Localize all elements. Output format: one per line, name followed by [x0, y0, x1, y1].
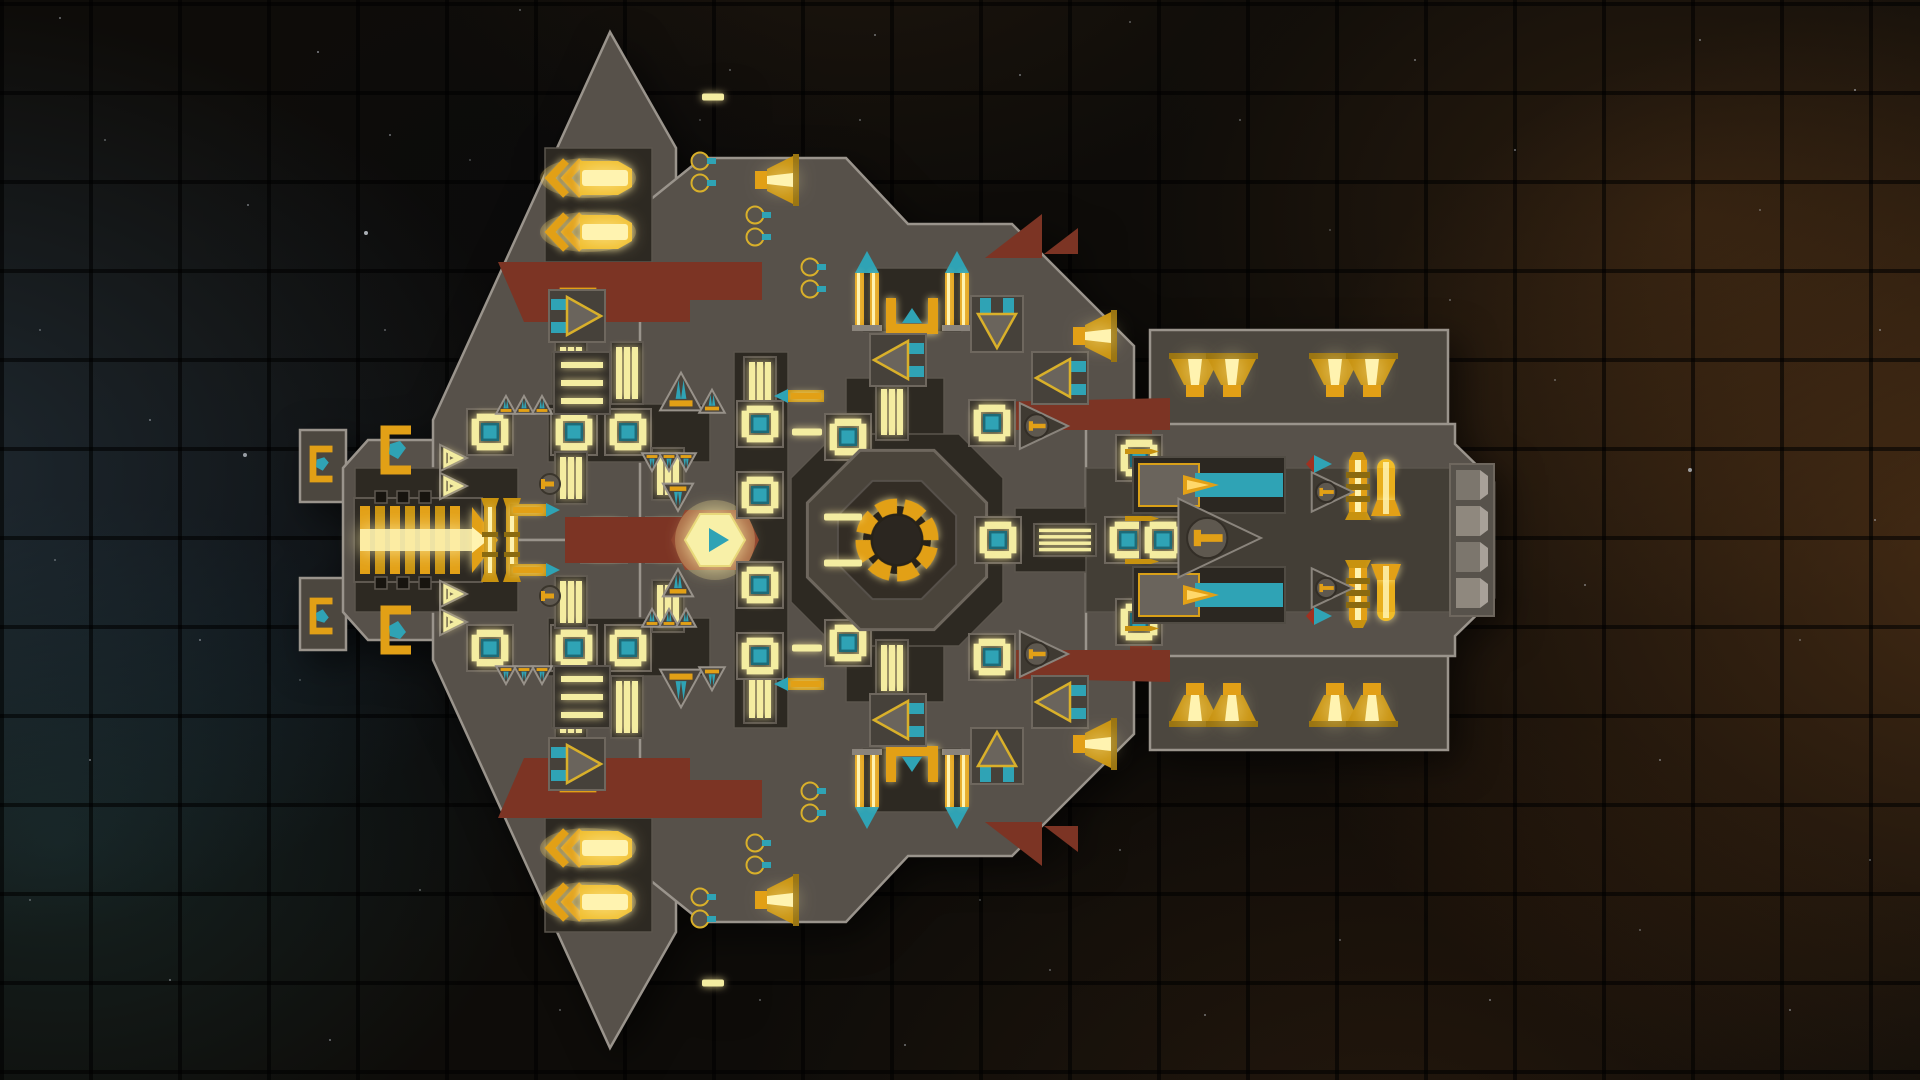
star — [389, 134, 391, 136]
star — [1554, 379, 1556, 381]
star — [59, 17, 61, 19]
star — [979, 899, 981, 901]
module-glowbar[interactable] — [702, 980, 724, 987]
module-corV[interactable] — [611, 342, 643, 404]
star — [1049, 969, 1051, 971]
star — [1854, 89, 1856, 91]
star — [1239, 119, 1241, 121]
star — [1449, 299, 1451, 301]
module-turret[interactable] — [971, 728, 1023, 784]
star — [1874, 519, 1876, 521]
module-engine[interactable] — [354, 498, 498, 582]
star — [1789, 1009, 1791, 1011]
star — [149, 419, 151, 421]
module-room[interactable] — [737, 562, 783, 608]
star — [54, 559, 56, 561]
star — [199, 639, 201, 641]
star — [759, 999, 761, 1001]
star — [384, 329, 386, 331]
star — [699, 119, 701, 121]
module-corV[interactable] — [555, 452, 587, 504]
module-turret[interactable] — [1032, 676, 1088, 728]
module-dome0[interactable] — [540, 586, 560, 606]
module-turret[interactable] — [971, 296, 1023, 352]
module-glowbar[interactable] — [792, 429, 822, 436]
star — [329, 1039, 331, 1041]
module-corV[interactable] — [555, 576, 587, 628]
star — [1879, 329, 1881, 331]
module-room[interactable] — [975, 517, 1021, 563]
module-corV[interactable] — [876, 384, 908, 440]
player-ship[interactable] — [300, 32, 1494, 1048]
module-launcher[interactable] — [540, 882, 636, 922]
module-turret[interactable] — [549, 290, 605, 342]
module-dome0[interactable] — [540, 474, 560, 494]
star — [364, 231, 368, 235]
star — [243, 453, 247, 457]
star — [859, 119, 861, 121]
module-turret[interactable] — [549, 738, 605, 790]
module-launcher[interactable] — [540, 212, 636, 252]
star — [1329, 229, 1331, 231]
module-room[interactable] — [737, 401, 783, 447]
module-glowbar[interactable] — [702, 94, 724, 101]
module-room[interactable] — [969, 400, 1015, 446]
star — [1489, 999, 1491, 1001]
module-room[interactable] — [737, 472, 783, 518]
module-armor[interactable] — [1450, 464, 1494, 616]
module-room[interactable] — [551, 409, 597, 455]
module-turret[interactable] — [1032, 352, 1088, 404]
module-turret[interactable] — [870, 334, 926, 386]
star — [419, 889, 421, 891]
module-glowbar[interactable] — [824, 514, 862, 521]
module-reactor[interactable] — [807, 450, 986, 629]
star — [729, 69, 731, 71]
star — [89, 759, 91, 761]
hull-plate — [1044, 228, 1078, 254]
hull-plate — [1044, 826, 1078, 852]
star — [299, 679, 301, 681]
module-room[interactable] — [605, 409, 651, 455]
star — [1514, 149, 1516, 151]
module-turret[interactable] — [870, 694, 926, 746]
module-room[interactable] — [737, 633, 783, 679]
star — [1639, 929, 1641, 931]
star — [1129, 21, 1131, 23]
module-ladder[interactable] — [554, 352, 610, 414]
module-glowbar[interactable] — [824, 560, 862, 567]
module-ladder[interactable] — [554, 666, 610, 728]
module-launcher[interactable] — [540, 158, 636, 198]
module-room[interactable] — [551, 625, 597, 671]
star — [169, 979, 171, 981]
module-corH[interactable] — [1034, 524, 1096, 556]
star — [1414, 59, 1416, 61]
star — [1688, 468, 1692, 472]
star — [317, 51, 319, 53]
star — [1659, 759, 1661, 761]
star — [1759, 209, 1761, 211]
star — [904, 1044, 906, 1046]
module-room[interactable] — [467, 409, 513, 455]
module-corV[interactable] — [611, 676, 643, 738]
ship-scene — [0, 0, 1920, 1080]
module-room[interactable] — [467, 625, 513, 671]
module-winrow[interactable] — [375, 491, 431, 503]
star — [247, 204, 249, 206]
module-launcher[interactable] — [540, 828, 636, 868]
star — [559, 1009, 561, 1011]
module-winrow[interactable] — [375, 577, 431, 589]
star — [1339, 939, 1341, 941]
module-room[interactable] — [605, 625, 651, 671]
star — [1869, 859, 1871, 861]
star — [1584, 584, 1586, 586]
star — [1019, 74, 1021, 76]
module-cannon[interactable] — [1125, 559, 1285, 631]
star — [1204, 1014, 1206, 1016]
star — [1119, 849, 1121, 851]
star — [1699, 39, 1701, 41]
star — [469, 159, 471, 161]
star — [29, 899, 31, 901]
star — [874, 34, 876, 36]
star — [39, 329, 41, 331]
star — [1799, 639, 1801, 641]
module-glowbar[interactable] — [792, 645, 822, 652]
star — [104, 139, 106, 141]
module-corV[interactable] — [876, 640, 908, 696]
game-viewport[interactable] — [0, 0, 1920, 1080]
star — [519, 9, 521, 11]
module-room[interactable] — [969, 634, 1015, 680]
